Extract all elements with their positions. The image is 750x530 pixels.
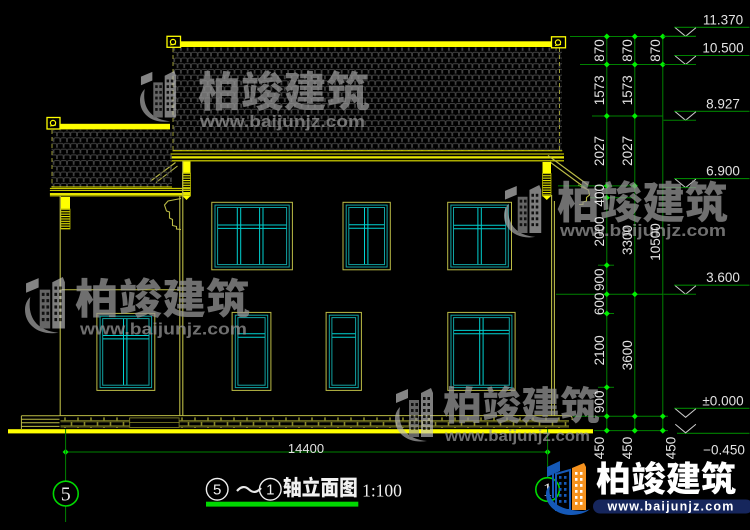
svg-text:www.baijunjz.com: www.baijunjz.com (559, 222, 726, 240)
svg-text:5: 5 (61, 484, 71, 506)
svg-text:www.baijunjz.com: www.baijunjz.com (79, 321, 247, 339)
svg-text:www.baijunjz.com: www.baijunjz.com (606, 500, 734, 514)
svg-text:www.baijunjz.com: www.baijunjz.com (444, 428, 590, 445)
svg-text:www.baijunjz.com: www.baijunjz.com (199, 113, 365, 131)
